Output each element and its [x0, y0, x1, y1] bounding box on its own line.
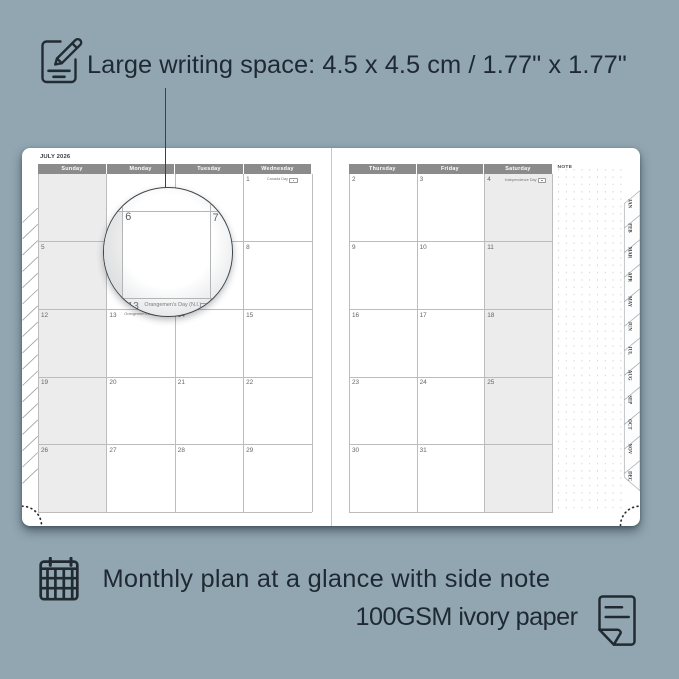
svg-text:AUG: AUG	[626, 370, 631, 381]
svg-text:APR: APR	[626, 272, 631, 282]
svg-text:MAR: MAR	[626, 247, 631, 259]
svg-text:DEC: DEC	[626, 471, 631, 482]
svg-text:NOV: NOV	[626, 444, 631, 455]
svg-text:JUN: JUN	[626, 321, 631, 331]
svg-text:FEB: FEB	[626, 223, 631, 233]
svg-text:JAN: JAN	[626, 199, 631, 209]
svg-text:MAY: MAY	[626, 296, 631, 308]
svg-text:OCT: OCT	[626, 419, 631, 430]
svg-text:SEP: SEP	[626, 395, 631, 404]
svg-text:JUL: JUL	[626, 346, 631, 355]
